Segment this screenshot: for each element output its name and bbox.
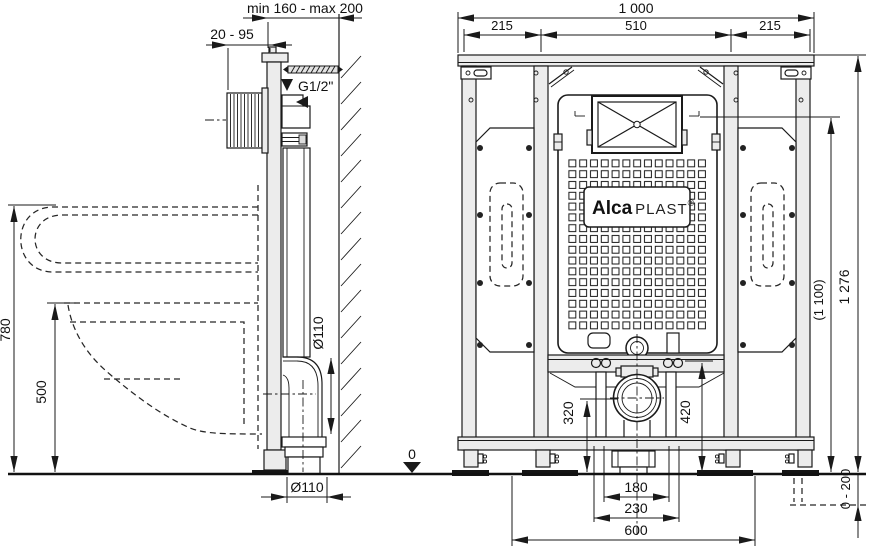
- dim-1100-label: (1 100): [811, 279, 826, 320]
- brand-bold: Alca: [592, 198, 633, 219]
- front-view: AlcaPLAST®: [452, 0, 866, 546]
- floor-datum: 0: [403, 446, 421, 473]
- dim-510-label: 510: [625, 18, 647, 33]
- side-panel-left: [476, 128, 534, 352]
- alcaplast-logo-plate: AlcaPLAST®: [584, 187, 695, 227]
- datum-triangle-icon: [403, 462, 421, 473]
- dim-230-label: 230: [624, 500, 648, 516]
- dim-180-label: 180: [624, 479, 648, 495]
- fixing-stud-right: [666, 372, 676, 437]
- corner-brace-left: [549, 67, 574, 87]
- dim-500-label: 500: [33, 380, 49, 404]
- flush-plate-sleeve: [205, 88, 268, 153]
- dim-height-flush: 780: [0, 205, 56, 472]
- dim-plate-depth-label: 20 - 95: [210, 26, 254, 42]
- dim-rail-height: 420: [677, 361, 713, 472]
- dim-width-segments: 215 510 215: [464, 18, 810, 52]
- dim-height-total: 1 276: [814, 55, 866, 472]
- dim-depth-range-label: min 160 - max 200: [247, 0, 363, 16]
- technical-drawing-page: min 160 - max 200 20 - 95 G1/2" 780: [0, 0, 872, 549]
- brand-rest: PLAST: [635, 201, 688, 218]
- dim-215-left-label: 215: [491, 18, 513, 33]
- datum-zero-label: 0: [408, 446, 416, 462]
- drain-fitting: [612, 451, 655, 474]
- top-bracket-right: [781, 67, 811, 79]
- dim-320-label: 320: [560, 401, 576, 425]
- side-panel-right: [738, 128, 796, 352]
- side-view: min 160 - max 200 20 - 95 G1/2" 780: [0, 0, 421, 503]
- toilet-outline-dashed: [21, 185, 262, 449]
- dim-780-label: 780: [0, 318, 13, 342]
- fixing-stud-left: [596, 372, 606, 437]
- supply-thread-label: G1/2": [298, 78, 333, 94]
- cistern-side: [283, 148, 310, 357]
- insulation-grid: [567, 158, 708, 331]
- inner-post-right: [724, 66, 738, 450]
- dim-420-label: 420: [677, 400, 693, 424]
- bottom-rail: [458, 437, 814, 450]
- wc-frame-installation-drawing: min 160 - max 200 20 - 95 G1/2" 780: [0, 0, 872, 549]
- corner-brace-right: [698, 67, 723, 87]
- dim-pipe-dia-outlet: Ø110: [261, 477, 351, 503]
- dim-feet-range: 0 - 200: [790, 469, 866, 538]
- flush-window: [575, 96, 699, 153]
- triangle-down-icon: [281, 79, 293, 91]
- wall-anchor-rod: [283, 66, 343, 73]
- outer-post-left: [462, 66, 476, 450]
- top-rail: [458, 55, 814, 66]
- brand-reg-mark: ®: [688, 198, 695, 208]
- dim-pipe-dia-elbow: Ø110: [310, 316, 331, 434]
- dim-waste-height: 320: [560, 399, 618, 472]
- dim-height-bowl: 500: [33, 303, 76, 472]
- dim-depth-range: min 160 - max 200: [243, 0, 363, 48]
- inner-post-left: [534, 66, 548, 450]
- outer-post-right: [796, 66, 810, 450]
- wall-section: [339, 14, 361, 474]
- top-bracket-left: [461, 67, 491, 79]
- dim-1276-label: 1 276: [836, 269, 852, 304]
- dim-215-right-label: 215: [759, 18, 781, 33]
- dim-dia110-elbow-label: Ø110: [310, 316, 326, 349]
- alcaplast-logo: AlcaPLAST®: [592, 198, 695, 219]
- dim-600-label: 600: [624, 522, 648, 538]
- dim-dia110-outlet-label: Ø110: [290, 479, 323, 495]
- dim-1000-label: 1 000: [618, 0, 653, 16]
